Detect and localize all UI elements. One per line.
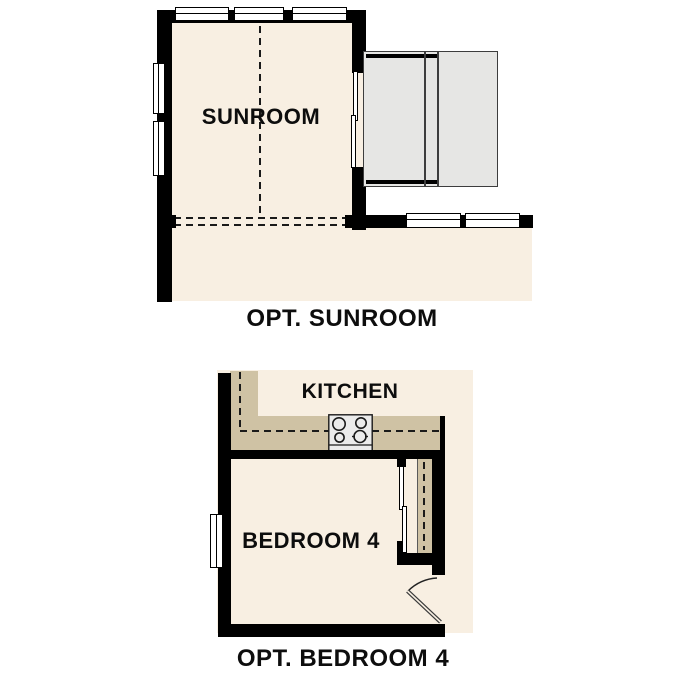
kitchen-label: KITCHEN bbox=[302, 381, 399, 402]
kitchen-dashed-line-vertical bbox=[239, 372, 241, 432]
bedroom-wall-top bbox=[218, 450, 445, 459]
kitchen-counter-end-edge bbox=[440, 416, 445, 450]
cooktop-icon bbox=[328, 414, 373, 452]
closet-door-panel-1 bbox=[399, 466, 404, 510]
closet-wall-bottom bbox=[397, 553, 445, 565]
bedroom-wall-left bbox=[218, 373, 231, 636]
bedroom-window-left bbox=[210, 514, 223, 568]
bedroom-room-label: BEDROOM 4 bbox=[242, 530, 380, 552]
closet-door-panel-2 bbox=[402, 506, 407, 553]
bedroom-plan: KITCHEN BEDROOM 4 OPT. BEDROOM 4 bbox=[0, 0, 687, 687]
bedroom-caption: OPT. BEDROOM 4 bbox=[237, 647, 449, 671]
floorplan-canvas: SUNROOM OPT. SUNROOM bbox=[0, 0, 687, 687]
closet-dashed-line bbox=[423, 462, 425, 550]
door-swing-icon bbox=[393, 570, 450, 628]
closet-stub-top bbox=[397, 451, 406, 467]
